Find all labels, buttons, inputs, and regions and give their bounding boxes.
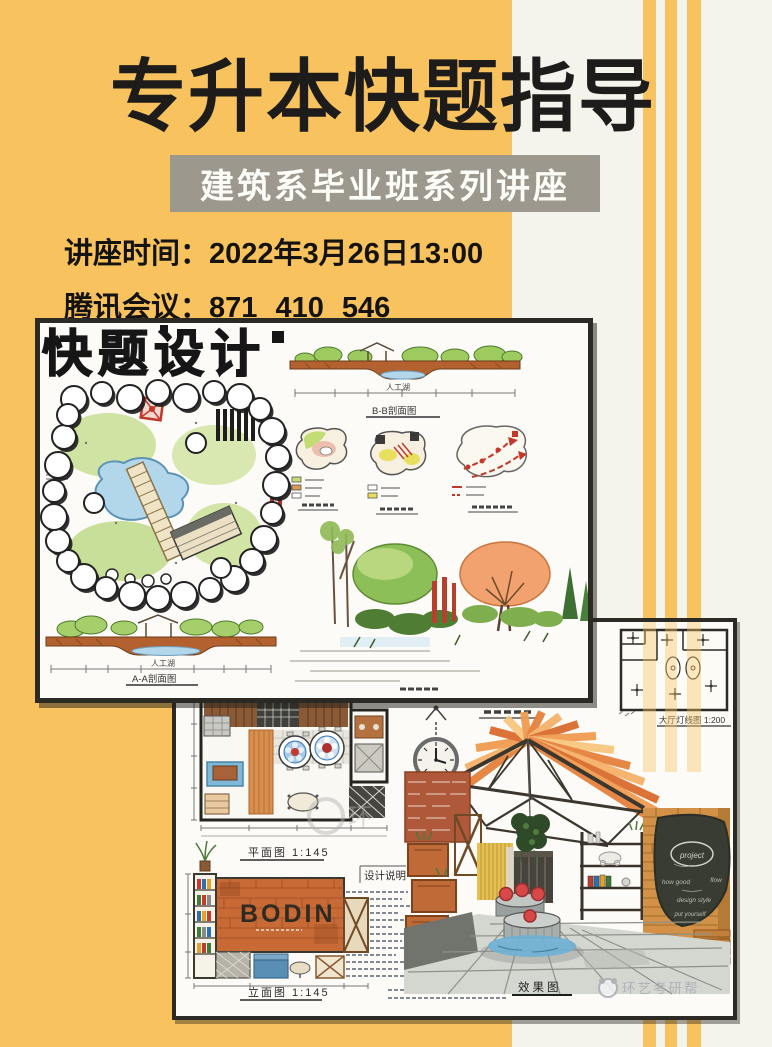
legend-1 bbox=[292, 477, 324, 498]
hanging-plant bbox=[511, 740, 550, 866]
elevation-furniture bbox=[216, 952, 344, 978]
design-notes-title: 设计说明 bbox=[364, 869, 406, 882]
analysis-diagram-3 bbox=[452, 426, 527, 512]
chalk-word-3: design style bbox=[677, 897, 712, 904]
chalk-word-1: how good bbox=[662, 879, 691, 886]
section-aa-caption: A-A剖面图 bbox=[132, 673, 176, 685]
analysis-diagram-1 bbox=[292, 428, 347, 510]
wall-clock bbox=[415, 706, 457, 782]
section-bb: 人工湖 B-B剖面图 bbox=[290, 343, 522, 417]
sheet-art-title: 快题设计 bbox=[42, 325, 284, 382]
poster-title: 专升本快题指导 bbox=[110, 42, 670, 154]
lecture-time-value: 2022年3月26日13:00 bbox=[209, 238, 483, 270]
ceiling-plan: 大厅灯线图 1:200 bbox=[619, 630, 731, 726]
watermark-text: 环艺考研帮 bbox=[622, 981, 700, 996]
lake-label: 人工湖 bbox=[151, 659, 175, 668]
perspective-caption: 效果图 bbox=[518, 980, 562, 994]
chalk-word-4: put yourself bbox=[673, 912, 706, 918]
legend-2 bbox=[368, 485, 400, 498]
analysis-diagram-2 bbox=[368, 431, 426, 514]
lecture-time-label: 讲座时间： bbox=[64, 238, 209, 270]
section-pavilion bbox=[138, 615, 178, 637]
section-aa: 人工湖 A-A剖面图 bbox=[46, 615, 276, 685]
watermark: 环艺考研帮 bbox=[599, 978, 700, 997]
legend-3 bbox=[452, 487, 486, 495]
floor-plan-caption: 平面图 1:145 bbox=[248, 846, 330, 859]
red-posts bbox=[432, 577, 456, 623]
landscape-perspective bbox=[290, 521, 588, 689]
potted-plant bbox=[196, 841, 216, 871]
lake-label-2: 人工湖 bbox=[386, 383, 410, 392]
wall-shelves bbox=[580, 821, 644, 920]
elevation: BODIN bbox=[185, 874, 368, 989]
center-watermark-char: 环 bbox=[348, 804, 372, 831]
elevation-sign: BODIN bbox=[240, 900, 336, 928]
analysis-diagrams bbox=[292, 426, 527, 514]
subtitle-text: 建筑系毕业班系列讲座 bbox=[200, 159, 570, 208]
chalk-circle-word: project bbox=[679, 851, 705, 860]
landscape-sketch-image: 快题设计 bbox=[35, 318, 593, 703]
landscape-sketch-drawing: 快题设计 bbox=[40, 323, 588, 698]
lecture-poster: 专升本快题指导 建筑系毕业班系列讲座 讲座时间：2022年3月26日13:00 … bbox=[0, 0, 772, 1047]
ceiling-plan-caption: 大厅灯线图 1:200 bbox=[659, 715, 725, 725]
sheet-art-title-text: 快题设计 bbox=[42, 326, 266, 382]
elevation-caption: 立面图 1:145 bbox=[248, 985, 330, 999]
chalk-word-2: flow bbox=[710, 877, 723, 884]
subtitle-banner: 建筑系毕业班系列讲座 bbox=[170, 155, 600, 212]
lecture-time-line: 讲座时间：2022年3月26日13:00 bbox=[64, 230, 483, 272]
site-plan bbox=[41, 380, 293, 613]
section-bb-caption: B-B剖面图 bbox=[372, 405, 416, 417]
interior-perspective: project how good flow design style put y… bbox=[404, 706, 730, 998]
